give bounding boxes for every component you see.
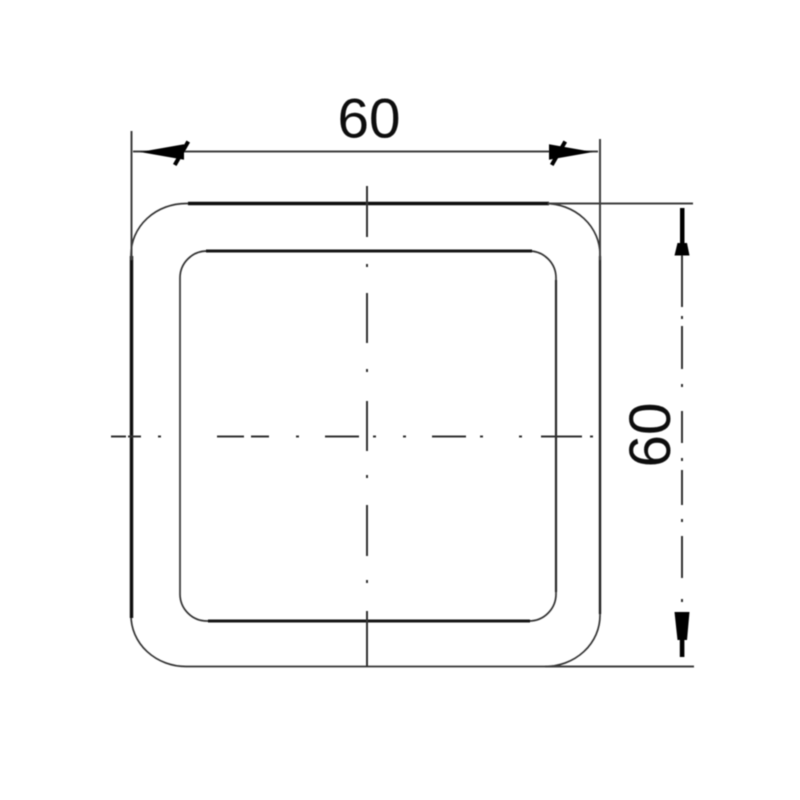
svg-text:60: 60 <box>618 403 683 468</box>
svg-text:60: 60 <box>338 87 401 150</box>
